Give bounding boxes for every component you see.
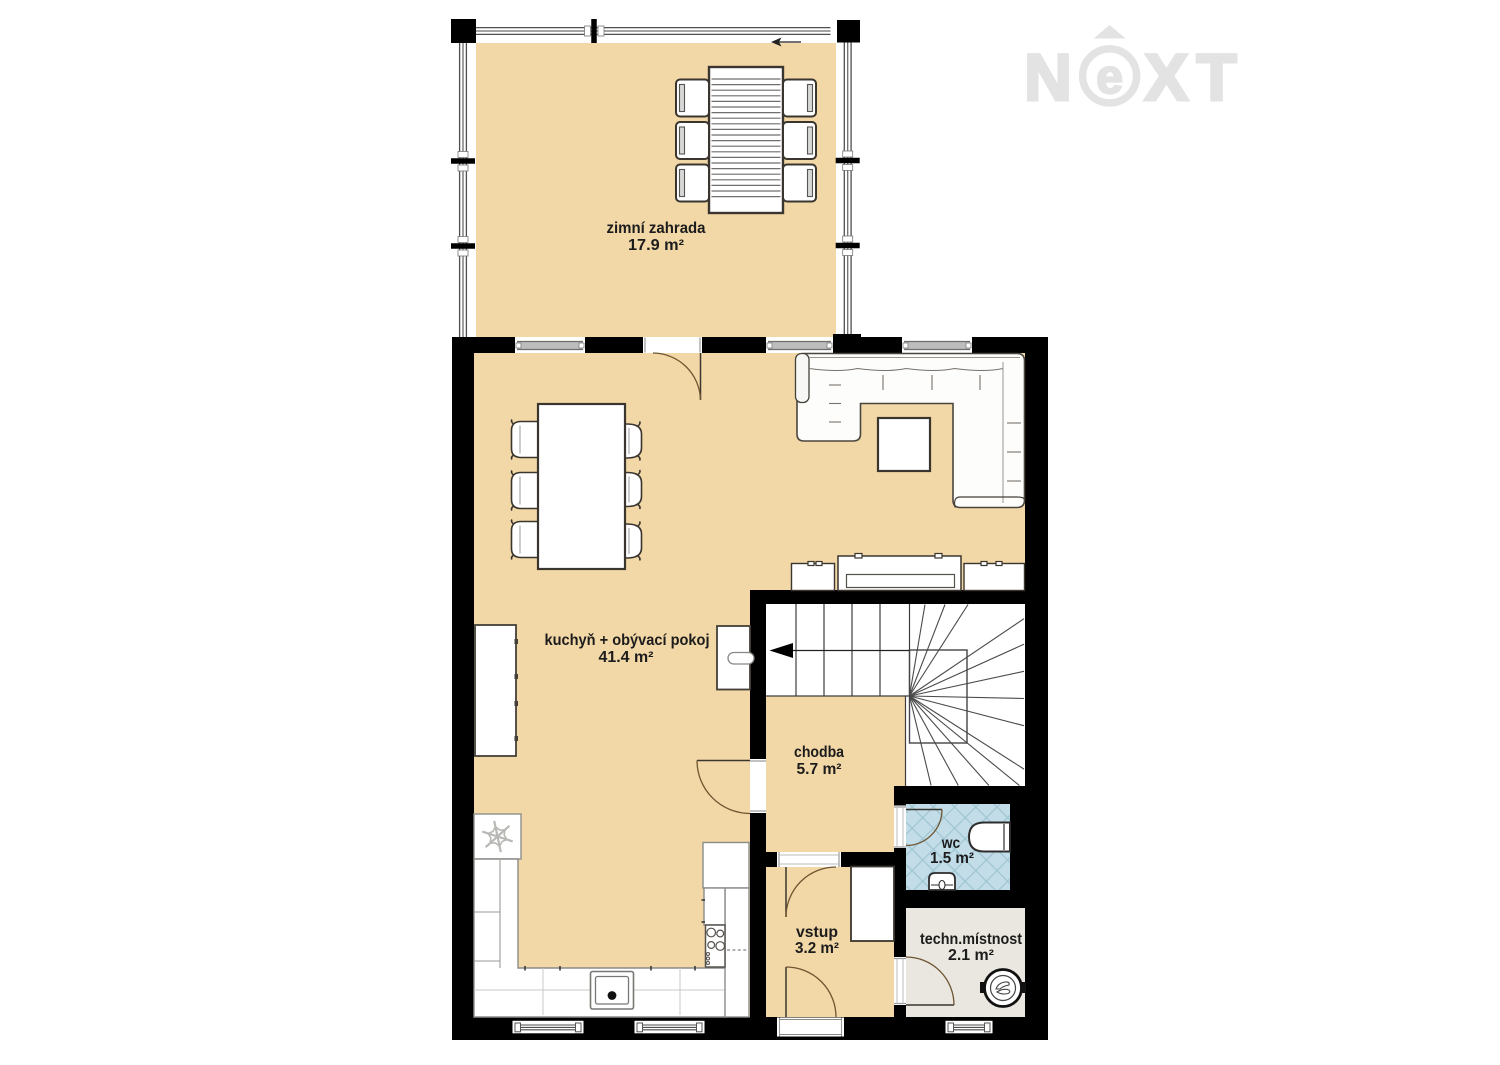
svg-text:2.1 m²: 2.1 m² [948,947,994,964]
svg-text:5.7 m²: 5.7 m² [797,761,842,778]
svg-text:techn.místnost: techn.místnost [920,931,1022,948]
svg-text:e: e [1096,51,1123,104]
svg-text:41.4 m²: 41.4 m² [599,649,654,666]
svg-text:17.9 m²: 17.9 m² [628,237,684,254]
svg-text:kuchyň + obývací pokoj: kuchyň + obývací pokoj [545,632,710,649]
svg-text:X: X [1144,40,1188,114]
svg-text:zimní zahrada: zimní zahrada [607,220,706,237]
svg-text:3.2 m²: 3.2 m² [795,940,839,957]
svg-text:chodba: chodba [794,744,844,761]
svg-text:vstup: vstup [796,924,838,941]
svg-text:N: N [1024,40,1072,114]
svg-text:1.5 m²: 1.5 m² [930,850,974,867]
svg-text:T: T [1196,40,1236,114]
